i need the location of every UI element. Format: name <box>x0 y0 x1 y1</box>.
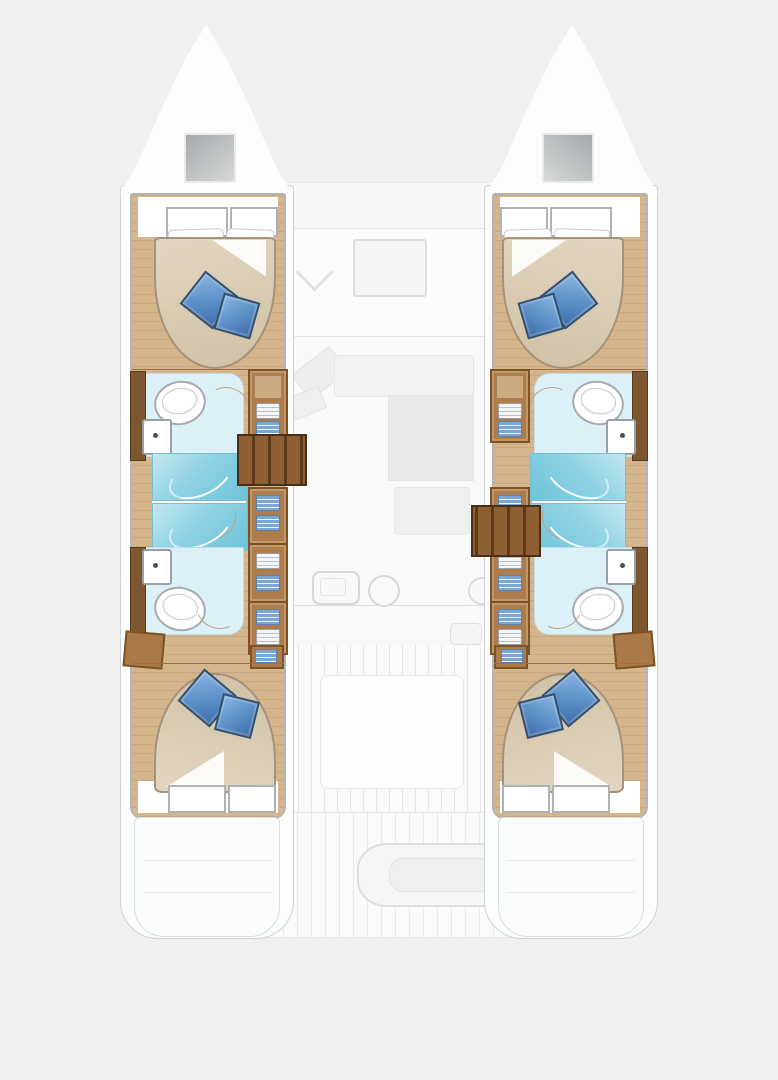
galley-stove-burner-icon <box>368 575 400 607</box>
galley-sink <box>312 571 360 605</box>
saloon-sofa <box>334 355 474 397</box>
washbasin <box>142 419 172 455</box>
washbasin <box>142 549 172 585</box>
shower-stall <box>152 453 248 501</box>
wardrobe <box>248 543 288 603</box>
hull-window <box>168 785 226 813</box>
foredeck-locker-icon <box>295 253 333 291</box>
washbasin <box>606 549 636 585</box>
bulkhead <box>494 663 646 664</box>
transom-steps <box>498 817 644 937</box>
aft-walkway <box>285 645 495 813</box>
folded-clothes-icon <box>498 403 522 419</box>
cockpit-door <box>320 675 464 789</box>
saloon-table <box>388 395 474 481</box>
transom-step-line <box>507 860 635 861</box>
companionway-stairs <box>237 434 307 486</box>
hanging-clothes-icon <box>496 375 524 399</box>
folded-clothes-icon <box>498 629 522 645</box>
hanging-clothes-icon <box>254 375 282 399</box>
saloon <box>283 336 497 646</box>
forward-crossbeam <box>282 182 498 230</box>
wardrobe <box>490 369 530 443</box>
wardrobe <box>248 487 288 545</box>
folded-clothes-icon <box>256 553 280 569</box>
transom-step-line <box>143 860 271 861</box>
folded-clothes-icon <box>256 609 280 625</box>
folded-clothes-icon <box>498 421 522 437</box>
port-hull <box>120 25 292 940</box>
folded-clothes-icon <box>498 575 522 591</box>
companionway-stairs <box>471 505 541 557</box>
washbasin <box>606 419 636 455</box>
transom-steps <box>134 817 280 937</box>
hull-window <box>502 785 550 813</box>
hull-window <box>552 785 610 813</box>
shower-stall <box>530 453 626 501</box>
starboard-hull <box>486 25 658 940</box>
folded-clothes-icon <box>256 495 280 511</box>
wardrobe <box>248 369 288 443</box>
transom-step-line <box>507 892 635 893</box>
shelf <box>250 645 284 669</box>
folded-clothes-icon <box>256 403 280 419</box>
folded-clothes-icon <box>256 515 280 531</box>
bow-hatch <box>542 133 594 183</box>
galley-fixture <box>450 623 482 645</box>
folded-clothes-icon <box>255 649 277 663</box>
folded-clothes-icon <box>498 609 522 625</box>
foredeck-hatch <box>353 239 427 297</box>
bow-hatch <box>184 133 236 183</box>
shelf <box>494 645 528 669</box>
folded-clothes-icon <box>256 575 280 591</box>
catamaran-floor-plan <box>0 0 778 1080</box>
hull-interior <box>130 193 286 819</box>
hull-window <box>228 785 276 813</box>
saloon-seat <box>394 487 470 535</box>
folded-clothes-icon <box>501 649 523 663</box>
bulkhead <box>132 663 284 664</box>
transom-step-line <box>143 892 271 893</box>
folded-clothes-icon <box>256 629 280 645</box>
